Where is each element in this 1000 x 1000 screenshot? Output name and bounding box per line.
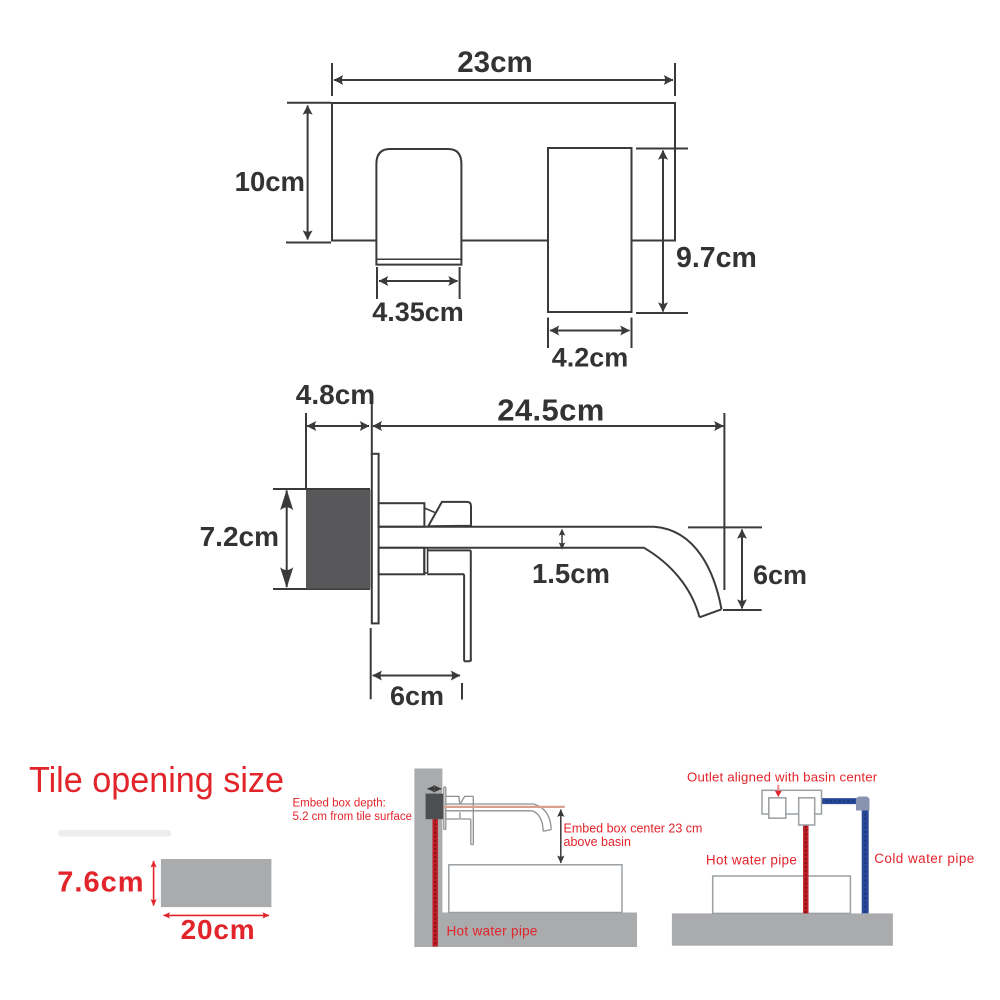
- svg-text:9.7cm: 9.7cm: [676, 242, 757, 274]
- svg-text:Embed box depth:: Embed box depth:: [293, 798, 386, 810]
- svg-text:1.5cm: 1.5cm: [532, 558, 610, 589]
- svg-text:Embed box center 23 cm: Embed box center 23 cm: [564, 822, 703, 836]
- svg-text:6cm: 6cm: [753, 560, 807, 590]
- svg-text:10cm: 10cm: [235, 166, 305, 197]
- svg-text:Tile opening size: Tile opening size: [29, 759, 284, 800]
- svg-text:Hot water pipe: Hot water pipe: [706, 853, 797, 868]
- svg-text:24.5cm: 24.5cm: [497, 393, 605, 428]
- svg-text:23cm: 23cm: [457, 46, 532, 79]
- svg-text:Cold water pipe: Cold water pipe: [874, 851, 975, 866]
- svg-text:Hot water pipe: Hot water pipe: [447, 924, 538, 939]
- svg-text:above basin: above basin: [564, 835, 631, 849]
- svg-text:4.35cm: 4.35cm: [372, 297, 464, 327]
- svg-text:4.8cm: 4.8cm: [296, 379, 375, 410]
- svg-text:7.6cm: 7.6cm: [57, 866, 144, 898]
- svg-text:5.2 cm from tile surface: 5.2 cm from tile surface: [293, 811, 413, 823]
- svg-text:6cm: 6cm: [390, 681, 444, 711]
- svg-text:20cm: 20cm: [181, 914, 256, 945]
- svg-text:Outlet aligned with basin cent: Outlet aligned with basin center: [687, 769, 878, 784]
- svg-text:7.2cm: 7.2cm: [200, 521, 279, 552]
- svg-text:4.2cm: 4.2cm: [552, 343, 629, 373]
